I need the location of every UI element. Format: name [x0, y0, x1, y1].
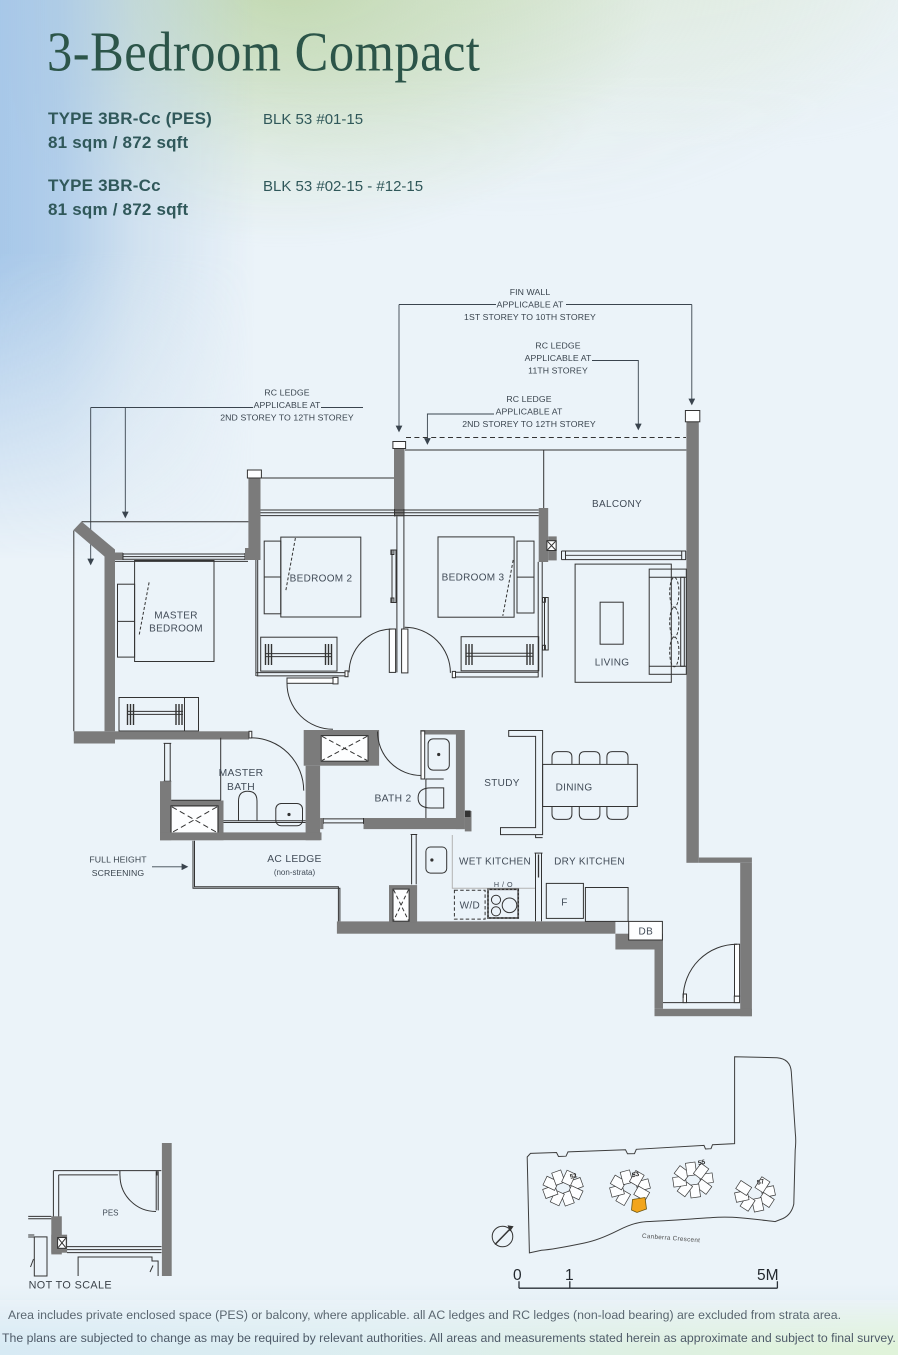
svg-text:5M: 5M — [757, 1267, 779, 1284]
svg-text:2ND STOREY TO 12TH STOREY: 2ND STOREY TO 12TH STOREY — [220, 413, 354, 423]
svg-text:2ND STOREY TO 12TH STOREY: 2ND STOREY TO 12TH STOREY — [462, 419, 596, 429]
svg-text:RC LEDGE: RC LEDGE — [264, 388, 309, 398]
svg-text:PES: PES — [102, 1209, 118, 1218]
svg-text:AC LEDGE: AC LEDGE — [267, 854, 321, 865]
svg-text:LIVING: LIVING — [595, 658, 630, 669]
svg-text:1ST STOREY TO 10TH STOREY: 1ST STOREY TO 10TH STOREY — [464, 312, 596, 322]
svg-text:BEDROOM: BEDROOM — [149, 624, 203, 635]
svg-text:APPLICABLE AT: APPLICABLE AT — [497, 300, 564, 310]
svg-text:STUDY: STUDY — [484, 778, 519, 789]
svg-text:FIN WALL: FIN WALL — [510, 287, 551, 297]
svg-text:MASTER: MASTER — [154, 611, 197, 622]
svg-text:(non-strata): (non-strata) — [274, 868, 316, 877]
svg-text:MASTER: MASTER — [219, 768, 264, 779]
svg-text:BATH 2: BATH 2 — [374, 794, 411, 805]
svg-text:APPLICABLE AT: APPLICABLE AT — [254, 400, 321, 410]
svg-text:Canberra Crescent: Canberra Crescent — [642, 1233, 701, 1245]
svg-text:H / O: H / O — [494, 880, 513, 889]
svg-text:F: F — [561, 898, 567, 909]
svg-text:APPLICABLE AT: APPLICABLE AT — [496, 407, 563, 417]
svg-text:DRY KITCHEN: DRY KITCHEN — [554, 857, 625, 868]
svg-text:APPLICABLE AT: APPLICABLE AT — [525, 353, 592, 363]
svg-text:BALCONY: BALCONY — [592, 499, 642, 510]
svg-text:RC LEDGE: RC LEDGE — [535, 341, 580, 351]
svg-text:SCREENING: SCREENING — [92, 868, 145, 878]
svg-text:BEDROOM 2: BEDROOM 2 — [290, 574, 353, 585]
svg-text:0: 0 — [513, 1267, 522, 1284]
svg-text:1: 1 — [565, 1267, 574, 1284]
svg-text:WET KITCHEN: WET KITCHEN — [459, 857, 531, 868]
svg-text:NOT TO SCALE: NOT TO SCALE — [29, 1280, 112, 1292]
svg-text:11TH STOREY: 11TH STOREY — [528, 366, 588, 376]
svg-text:BEDROOM 3: BEDROOM 3 — [442, 573, 505, 584]
svg-text:BATH: BATH — [227, 782, 255, 793]
svg-text:RC LEDGE: RC LEDGE — [506, 394, 551, 404]
svg-text:DINING: DINING — [556, 783, 593, 794]
svg-text:DB: DB — [639, 927, 654, 938]
svg-text:FULL HEIGHT: FULL HEIGHT — [89, 855, 147, 865]
svg-text:W/D: W/D — [460, 901, 480, 912]
